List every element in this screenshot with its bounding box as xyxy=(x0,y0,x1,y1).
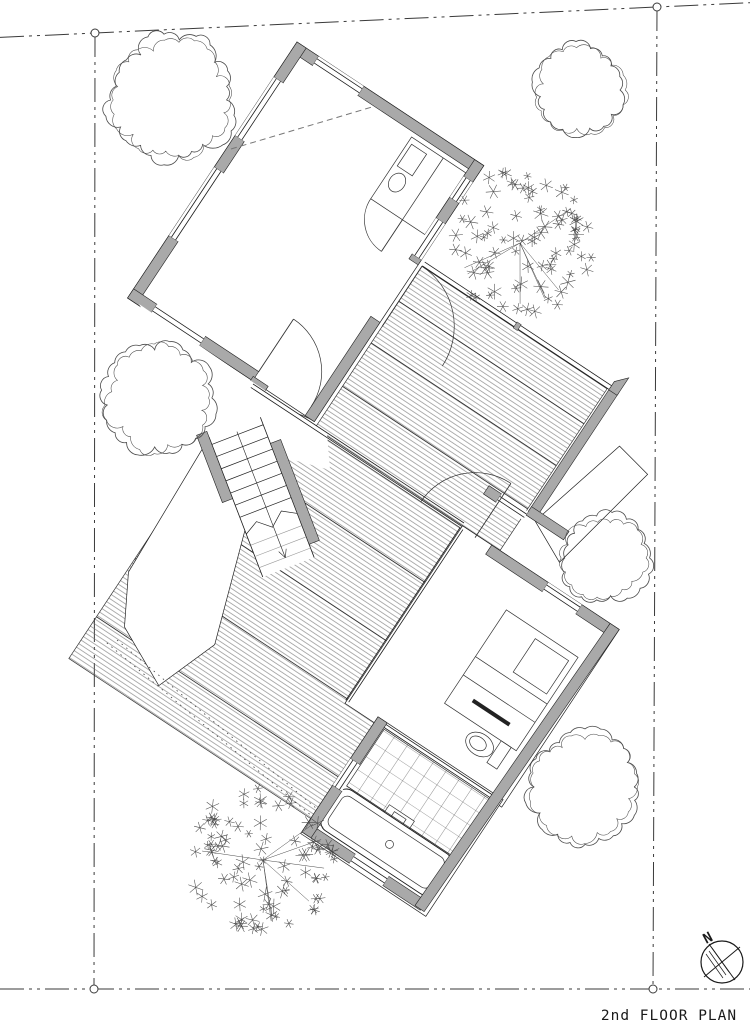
north-arrow: N xyxy=(701,929,743,983)
conifer-tree xyxy=(449,167,596,318)
broadleaf-tree xyxy=(103,31,236,166)
floor-plan-canvas: DN N 2nd FLOOR PLAN xyxy=(0,0,750,1028)
floor-plan-page: DN N 2nd FLOOR PLAN xyxy=(0,0,750,1028)
broadleaf-tree xyxy=(532,40,628,137)
drawing-title: 2nd FLOOR PLAN xyxy=(601,1008,737,1024)
compass-north-label: N xyxy=(701,929,716,947)
